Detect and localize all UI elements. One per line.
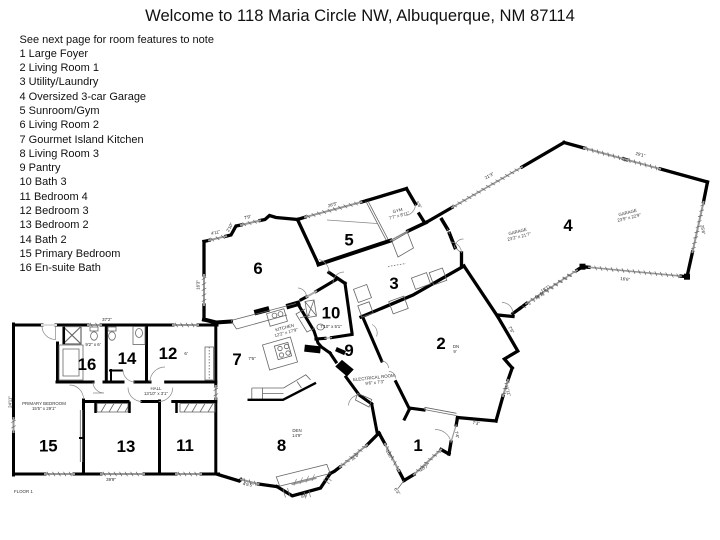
svg-text:7'4": 7'4" — [454, 431, 460, 439]
svg-text:16'6": 16'6" — [620, 276, 631, 282]
svg-text:12: 12 — [159, 344, 178, 363]
svg-text:FLOOR 1: FLOOR 1 — [14, 489, 33, 494]
svg-text:24'11": 24'11" — [8, 396, 13, 408]
svg-text:4'11": 4'11" — [211, 229, 222, 236]
svg-text:39'9": 39'9" — [106, 477, 116, 482]
svg-text:21'3": 21'3" — [484, 171, 495, 180]
svg-text:15: 15 — [39, 437, 58, 456]
svg-text:6': 6' — [184, 351, 187, 356]
svg-text:13: 13 — [117, 437, 136, 456]
svg-text:10'7": 10'7" — [419, 463, 430, 472]
svg-text:14'9": 14'9" — [292, 433, 302, 438]
svg-text:9: 9 — [344, 341, 353, 360]
svg-text:9'2" x 6': 9'2" x 6' — [85, 342, 100, 347]
svg-text:7'6": 7'6" — [248, 356, 256, 361]
svg-text:6'6": 6'6" — [415, 200, 423, 209]
svg-text:2: 2 — [436, 334, 445, 353]
svg-text:14: 14 — [118, 349, 137, 368]
svg-text:13'10" x 3'1": 13'10" x 3'1" — [144, 391, 169, 396]
svg-text:6: 6 — [253, 259, 262, 278]
svg-text:1: 1 — [413, 436, 422, 455]
svg-text:7: 7 — [232, 350, 241, 369]
svg-text:6'3": 6'3" — [393, 487, 402, 496]
svg-text:11: 11 — [176, 436, 194, 455]
svg-text:11'6": 11'6" — [350, 452, 361, 462]
svg-text:25'6": 25'6" — [700, 224, 707, 235]
svg-text:4: 4 — [563, 216, 573, 235]
svg-text:15'5" x 29'1": 15'5" x 29'1" — [32, 406, 57, 411]
svg-text:7'10" x 5'1": 7'10" x 5'1" — [320, 324, 342, 329]
svg-text:9'6" x 7'3": 9'6" x 7'3" — [365, 379, 385, 386]
svg-text:10: 10 — [322, 304, 341, 323]
svg-text:4'9.5": 4'9.5" — [242, 481, 254, 488]
svg-text:8: 8 — [277, 436, 286, 455]
svg-text:3: 3 — [389, 274, 398, 293]
svg-text:26'5": 26'5" — [327, 201, 338, 209]
svg-text:16'3": 16'3" — [196, 280, 201, 290]
svg-text:7'3": 7'3" — [472, 420, 480, 426]
svg-text:29'1": 29'1" — [635, 151, 646, 158]
svg-text:5: 5 — [344, 231, 353, 250]
svg-text:7'9": 7'9" — [244, 214, 253, 221]
svg-text:37'2": 37'2" — [102, 317, 112, 322]
svg-text:9': 9' — [453, 349, 456, 354]
svg-text:16: 16 — [78, 355, 97, 374]
